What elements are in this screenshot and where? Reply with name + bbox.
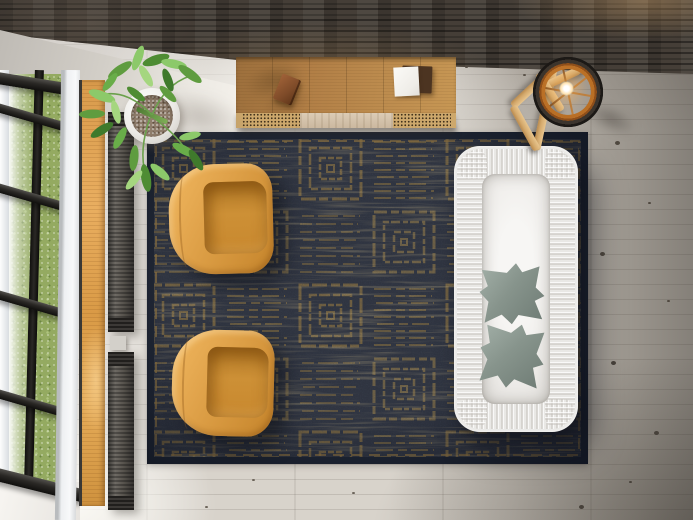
armchair-seam: [181, 335, 198, 429]
radiator-bracket: [110, 336, 126, 350]
potted-plant: [50, 30, 240, 200]
sideboard-mid-panel: [300, 113, 393, 128]
cane-panel-left: [242, 113, 300, 128]
cane-panel-right: [393, 113, 451, 128]
sideboard: [236, 57, 456, 128]
lamp-bulb: [559, 81, 574, 96]
sideboard-top: [236, 57, 456, 113]
radiator-lower: [108, 352, 134, 510]
armchair-bottom: [171, 329, 276, 438]
sideboard-front: [236, 113, 456, 128]
scene: [0, 0, 693, 520]
book-white: [393, 66, 419, 96]
armchair-body: [171, 329, 276, 438]
armchair-seat: [206, 347, 269, 419]
